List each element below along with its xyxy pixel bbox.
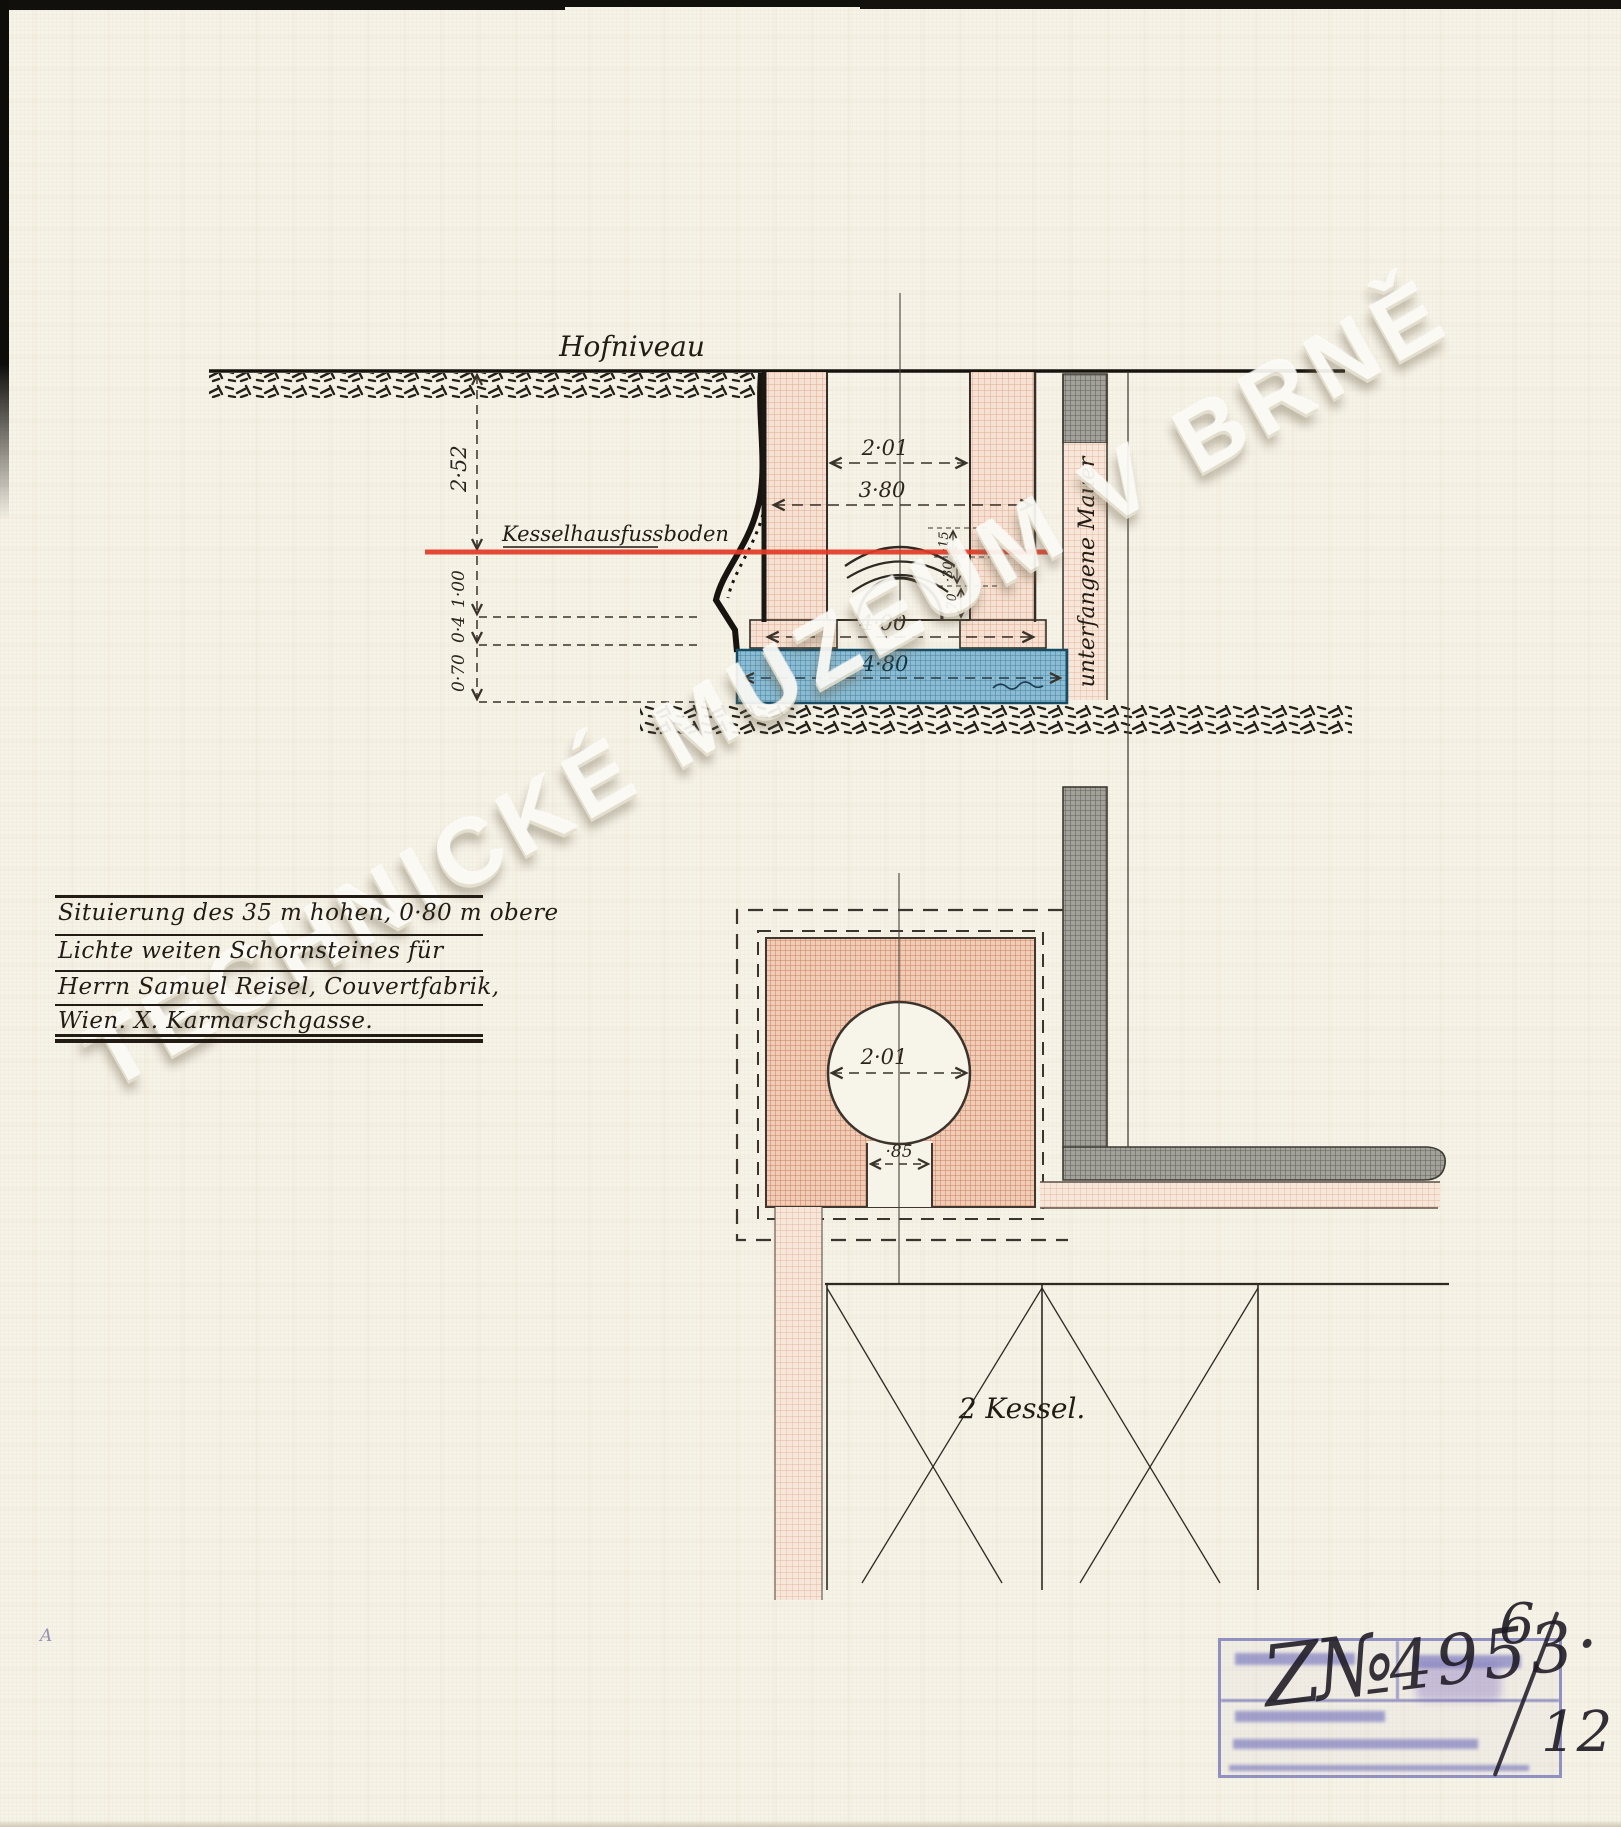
dim-arch-bottom: ·70: [945, 593, 960, 614]
inventory-fraction-denominator: 12: [1541, 1700, 1612, 1765]
title-line-3: Herrn Samuel Reisel, Couvertfabrik,: [58, 974, 499, 1000]
kesselhausfussboden-label: Kesselhausfussboden: [501, 522, 729, 546]
title-rule: [55, 970, 483, 972]
title-block: Situierung des 35 m hohen, 0·80 m obere …: [55, 888, 483, 1046]
flue-wall-band: [775, 1207, 822, 1600]
title-rule: [55, 934, 483, 936]
dim-flue-diameter: 2·01: [860, 1045, 908, 1069]
chimney-section: ·15 ·30 ·70 2·01 3·80 4·00: [750, 293, 1046, 648]
dim-ground-to-floor: 2·52: [447, 445, 471, 493]
title-rule: [55, 895, 483, 898]
dim-foundation-width: 4·80: [861, 652, 909, 676]
title-rule: [55, 1004, 483, 1006]
title-line-4: Wien. X. Karmarschgasse.: [58, 1008, 373, 1034]
title-line-2: Lichte weiten Schornsteines für: [58, 938, 444, 964]
inventory-fraction-numerator: 6: [1499, 1592, 1535, 1657]
dim-seg3: 0·70: [449, 654, 469, 692]
dim-channel-width: ·85: [885, 1142, 912, 1162]
dim-base-width: 4·00: [859, 611, 907, 635]
boiler-floor-level: Kesselhausfussboden: [425, 522, 1048, 552]
dim-seg1: 1·00: [449, 570, 469, 608]
title-rule: [55, 1039, 483, 1043]
dim-arch-mid: ·30: [941, 561, 956, 582]
dim-arch-top: ·15: [937, 531, 952, 552]
hofniveau-label: Hofniveau: [558, 330, 705, 363]
dim-seg2: 0·4: [449, 616, 469, 643]
dim-outer-width: 3·80: [859, 478, 906, 502]
margin-note: A: [40, 1626, 52, 1646]
excavation-edge: [716, 373, 762, 652]
foundation-slab: 4·80: [737, 650, 1067, 703]
scan-edge-bottom: [0, 1820, 1621, 1827]
scanned-drawing-page: Hofniveau 2·52 1·00 0·4 0·70: [0, 0, 1621, 1827]
scan-edge-top-left: [0, 0, 565, 10]
wall-label: unterfangene Mauer: [1075, 455, 1100, 687]
building-wall-plan: [1040, 787, 1445, 1208]
title-line-1: Situierung des 35 m hohen, 0·80 m obere: [58, 900, 559, 926]
kessel-label: 2 Kessel.: [958, 1392, 1086, 1425]
scan-edge-top-right: [860, 0, 1621, 9]
scan-edge-left: [0, 0, 9, 520]
dim-inner-width: 2·01: [861, 436, 909, 460]
title-rule: [55, 1034, 483, 1037]
inventory-prefix: Z№: [1257, 1614, 1394, 1727]
boilers-plan: [825, 1284, 1449, 1590]
